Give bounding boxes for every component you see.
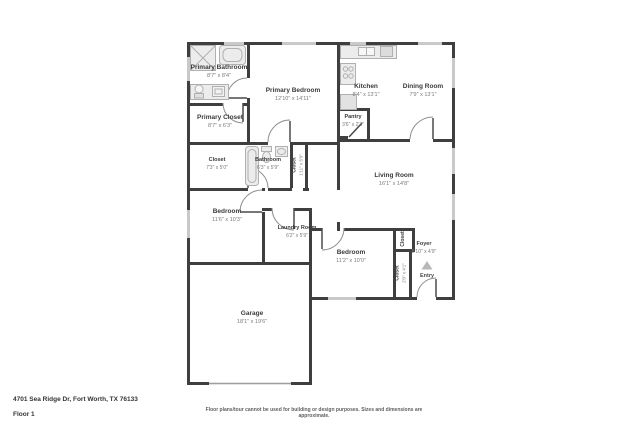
room-name: Dining Room <box>403 83 443 91</box>
room-label-kitchen: Kitchen 8'4" x 13'1" <box>352 83 379 99</box>
stove-icon <box>341 64 356 85</box>
property-address: 4701 Sea Ridge Dr, Fort Worth, TX 76133 <box>13 396 138 403</box>
room-dims: 1'11" x 5'9" <box>299 154 305 176</box>
room-name: Closet <box>292 154 299 176</box>
room-label-pantry: Pantry 3'6" x 2'3" <box>342 114 364 128</box>
room-label-primary-bedroom: Primary Bedroom 12'10" x 14'11" <box>266 87 321 103</box>
room-name: Laundry Room <box>278 225 317 232</box>
room-label-bath-closet: Closet 1'11" x 5'9" <box>292 154 305 176</box>
room-label-living-room: Living Room 16'1" x 14'8" <box>374 172 413 188</box>
room-dims: 11'2" x 10'0" <box>336 258 366 265</box>
cabinet-icon <box>213 87 225 97</box>
room-name: Primary Bedroom <box>266 87 321 95</box>
room-name: Primary Bathroom <box>191 64 248 72</box>
floorplan-page: Primary Bathroom 8'7" x 8'4" Primary Bed… <box>0 0 640 426</box>
entry-arrow-icon <box>422 261 433 270</box>
room-label-hall-closet: Closet 7'3" x 5'0" <box>206 157 228 171</box>
room-dims: 8'7" x 8'4" <box>191 73 248 80</box>
floor-number-label: Floor 1 <box>13 411 35 418</box>
room-label-bedroom-right: Bedroom 11'2" x 10'0" <box>336 249 366 265</box>
room-name: Bedroom <box>212 208 242 216</box>
room-label-garage: Garage 18'1" x 19'6" <box>237 310 267 326</box>
kitchen-fixtures <box>341 46 397 110</box>
room-dims: 16'1" x 14'8" <box>374 181 413 188</box>
room-dims: 5'10" x 4'9" <box>412 249 437 256</box>
room-name: Kitchen <box>352 83 379 91</box>
room-dims: 7'3" x 5'0" <box>206 165 228 172</box>
room-label-foyer: Foyer 5'10" x 4'9" <box>412 241 437 255</box>
room-label-entry-closet: Closet 2'0" x 4'1" <box>395 263 408 283</box>
room-name: Pantry <box>342 114 364 121</box>
disclaimer-text: Floor plans/tour cannot be used for buil… <box>190 407 438 419</box>
oven-icon <box>381 47 393 57</box>
room-name: Closet <box>395 263 402 283</box>
room-dims: 2'0" x 4'1" <box>402 263 408 283</box>
room-name: Garage <box>237 310 267 318</box>
room-dims: 7'9" x 13'1" <box>403 92 443 99</box>
room-label-laundry-room: Laundry Room 6'2" x 5'9" <box>278 225 317 239</box>
room-label-bathroom: Bathroom 6'3" x 5'9" <box>255 157 281 171</box>
room-label-foyer-closet: Closet <box>400 231 407 246</box>
room-label-dining-room: Dining Room 7'9" x 13'1" <box>403 83 443 99</box>
room-name: Foyer <box>412 241 437 248</box>
sink-icon <box>195 85 203 93</box>
room-dims: 6'3" x 5'9" <box>255 165 281 172</box>
room-name: Living Room <box>374 172 413 180</box>
room-dims: 3'6" x 2'3" <box>342 122 364 129</box>
room-dims: 12'10" x 14'11" <box>266 96 321 103</box>
room-name: Primary Closet <box>197 114 243 122</box>
room-name: Bathroom <box>255 157 281 164</box>
toilet-icon <box>262 147 272 152</box>
room-dims: 6'2" x 5'9" <box>278 233 317 240</box>
room-dims: 8'4" x 13'1" <box>352 92 379 99</box>
garage-door <box>209 383 291 385</box>
room-label-primary-bathroom: Primary Bathroom 8'7" x 8'4" <box>191 64 248 80</box>
entry-label: Entry <box>420 273 434 279</box>
room-dims: 11'6" x 10'3" <box>212 217 242 224</box>
room-dims: 18'1" x 19'6" <box>237 319 267 326</box>
room-label-primary-closet: Primary Closet 8'7" x 6'3" <box>197 114 243 130</box>
entry-marker <box>422 261 433 270</box>
room-name: Bedroom <box>336 249 366 257</box>
room-dims: 8'7" x 6'3" <box>197 123 243 130</box>
room-name: Closet <box>400 231 407 246</box>
room-name: Closet <box>206 157 228 164</box>
room-label-bedroom-left: Bedroom 11'6" x 10'3" <box>212 208 242 224</box>
floor-plan-drawing <box>0 0 640 426</box>
